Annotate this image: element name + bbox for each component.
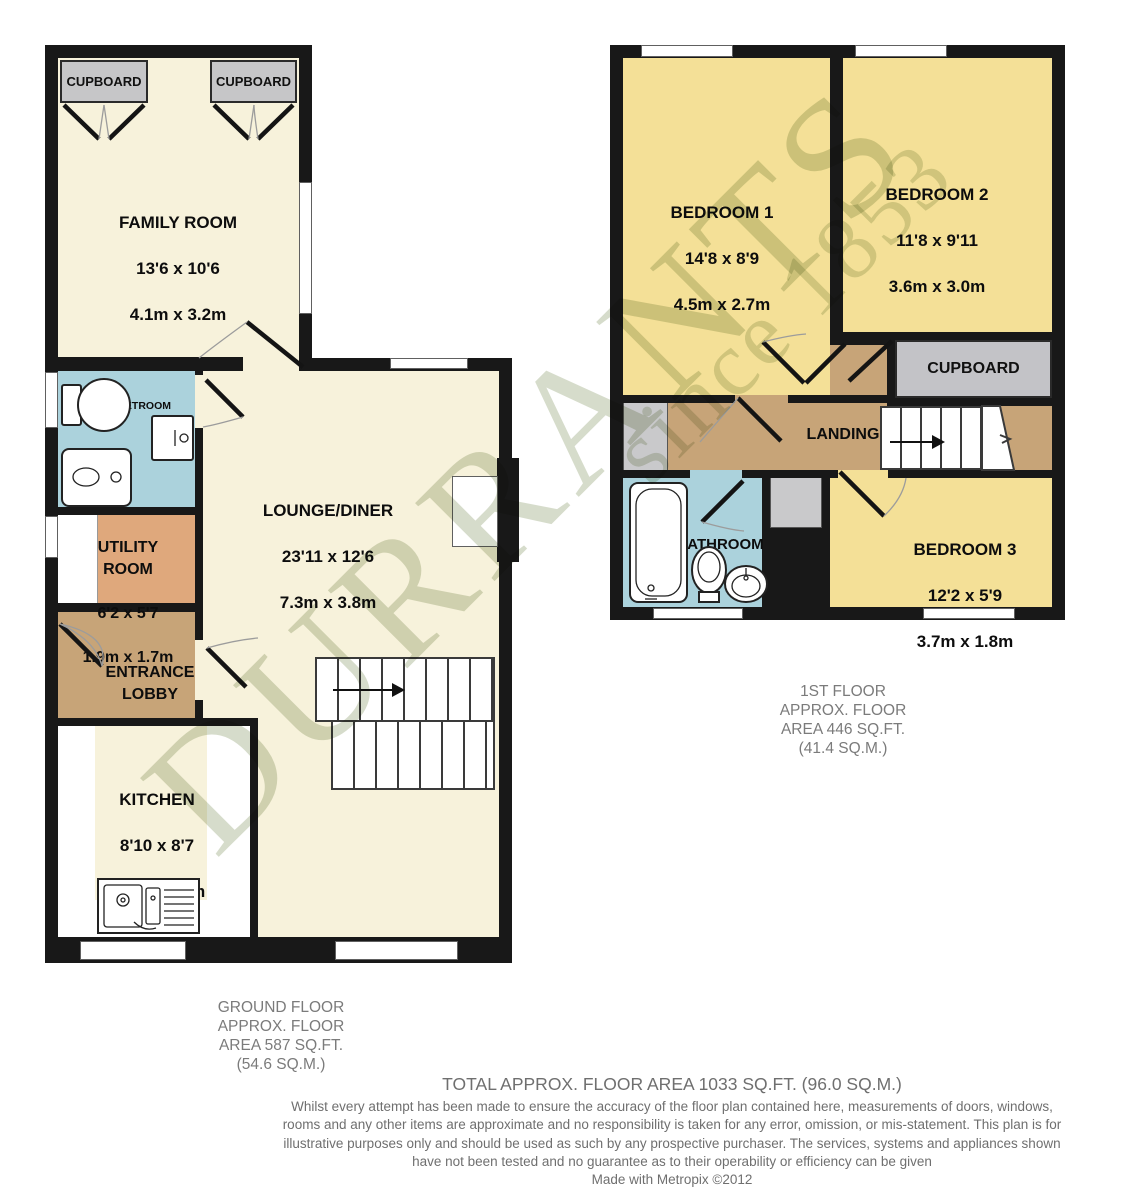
- door-opening-patch: [838, 470, 888, 478]
- wall: [623, 470, 690, 478]
- caption-line: (54.6 SQ.M.): [171, 1055, 391, 1074]
- bay-window-jut: [497, 458, 519, 562]
- void-left: [623, 400, 668, 473]
- caption-line: (41.4 SQ.M.): [733, 739, 953, 758]
- bedroom2-label: BEDROOM 2 11'8 x 9'11 3.6m x 3.0m: [837, 160, 1037, 321]
- staircase-flight-return: [331, 720, 495, 790]
- wall: [770, 528, 822, 607]
- bay-window: [452, 476, 498, 547]
- room-wetroom: [58, 371, 195, 507]
- bedroom3-label: BEDROOM 3 12'2 x 5'9 3.7m x 1.8m: [865, 515, 1065, 676]
- caption-line: APPROX. FLOOR: [171, 1017, 391, 1036]
- wall: [822, 478, 830, 607]
- door-opening-patch: [690, 470, 742, 478]
- room-size-imperial: 6'2 x 5'7: [63, 603, 193, 625]
- window: [855, 45, 947, 57]
- family-room-label: FAMILY ROOM 13'6 x 10'6 4.1m x 3.2m: [78, 188, 278, 349]
- wall: [788, 395, 887, 403]
- cupboard-label: CUPBOARD: [927, 360, 1019, 378]
- cupboard-first-floor: CUPBOARD: [895, 340, 1052, 398]
- bedroom1-label: BEDROOM 1 14'8 x 8'9 4.5m x 2.7m: [622, 178, 822, 339]
- window: [299, 182, 312, 314]
- floorplan-page: CUPBOARD CUPBOARD FAMILY ROOM 13'6 x 10'…: [0, 0, 1124, 1200]
- wall: [623, 395, 735, 403]
- bathroom-label: BATHROOM: [670, 533, 770, 556]
- room-size-metric: 4.1m x 3.2m: [78, 303, 278, 326]
- wall: [888, 470, 1052, 478]
- room-size-metric: 3.6m x 3.0m: [837, 275, 1037, 298]
- ground-floor-caption: GROUND FLOOR APPROX. FLOOR AREA 587 SQ.F…: [171, 998, 391, 1074]
- room-size-imperial: 23'11 x 12'6: [228, 545, 428, 568]
- wall: [195, 363, 203, 375]
- window: [335, 941, 458, 960]
- window: [45, 516, 58, 558]
- wall: [887, 332, 1052, 340]
- wall: [843, 332, 855, 340]
- room-size-metric: 4.5m x 2.7m: [622, 293, 822, 316]
- room-size-imperial: 8'10 x 8'7: [57, 834, 257, 857]
- wetroom-label: WETROOM: [113, 400, 173, 412]
- entrance-lobby-label: ENTRANCE LOBBY: [85, 640, 215, 728]
- room-name: BEDROOM 2: [837, 183, 1037, 206]
- window: [45, 372, 58, 428]
- room-name: BEDROOM 1: [622, 201, 822, 224]
- staircase-flight-up: [315, 657, 495, 722]
- metropix-credit: Made with Metropix ©2012: [292, 1172, 1052, 1187]
- disclaimer-text: Whilst every attempt has been made to en…: [282, 1098, 1062, 1171]
- caption-line: APPROX. FLOOR: [733, 701, 953, 720]
- cupboard-right: CUPBOARD: [210, 60, 297, 103]
- room-name: ENTRANCE LOBBY: [95, 662, 205, 706]
- room-size-metric: 2.7m x 2.6m: [57, 880, 257, 903]
- caption-line: AREA 446 SQ.FT.: [733, 720, 953, 739]
- door-opening-patch: [735, 395, 788, 403]
- kitchen-label: KITCHEN 8'10 x 8'7 2.7m x 2.6m: [57, 765, 257, 926]
- window: [390, 358, 468, 369]
- void-center: [770, 475, 822, 528]
- room-name: KITCHEN: [57, 788, 257, 811]
- cupboard-left: CUPBOARD: [60, 60, 148, 103]
- wall: [742, 470, 838, 478]
- room-size-metric: 3.7m x 1.8m: [865, 630, 1065, 653]
- wall: [45, 507, 203, 515]
- room-size-imperial: 11'8 x 9'11: [837, 229, 1037, 252]
- window: [653, 608, 743, 619]
- staircase-upper: [880, 406, 982, 470]
- wall: [887, 398, 1052, 406]
- caption-line: 1ST FLOOR: [733, 682, 953, 701]
- lounge-diner-label: LOUNGE/DINER 23'11 x 12'6 7.3m x 3.8m: [228, 476, 428, 637]
- room-size-metric: 7.3m x 3.8m: [228, 591, 428, 614]
- wall: [887, 340, 895, 398]
- room-name: FAMILY ROOM: [78, 211, 278, 234]
- room-name: BEDROOM 3: [865, 538, 1065, 561]
- door-opening-patch: [243, 357, 301, 371]
- room-name: UTILITY ROOM: [83, 537, 173, 581]
- room-name: LOUNGE/DINER: [228, 499, 428, 522]
- room-size-imperial: 14'8 x 8'9: [622, 247, 822, 270]
- caption-line: GROUND FLOOR: [171, 998, 391, 1017]
- first-floor-caption: 1ST FLOOR APPROX. FLOOR AREA 446 SQ.FT. …: [733, 682, 953, 758]
- door-opening-patch: [195, 375, 203, 428]
- room-size-imperial: 13'6 x 10'6: [78, 257, 278, 280]
- cupboard-label: CUPBOARD: [216, 74, 291, 89]
- cupboard-label: CUPBOARD: [66, 74, 141, 89]
- room-size-imperial: 12'2 x 5'9: [865, 584, 1065, 607]
- wall: [45, 357, 243, 371]
- landing-label: LANDING: [793, 424, 893, 446]
- total-floor-area: TOTAL APPROX. FLOOR AREA 1033 SQ.FT. (96…: [292, 1074, 1052, 1095]
- window: [641, 45, 733, 57]
- window: [80, 941, 186, 960]
- caption-line: AREA 587 SQ.FT.: [171, 1036, 391, 1055]
